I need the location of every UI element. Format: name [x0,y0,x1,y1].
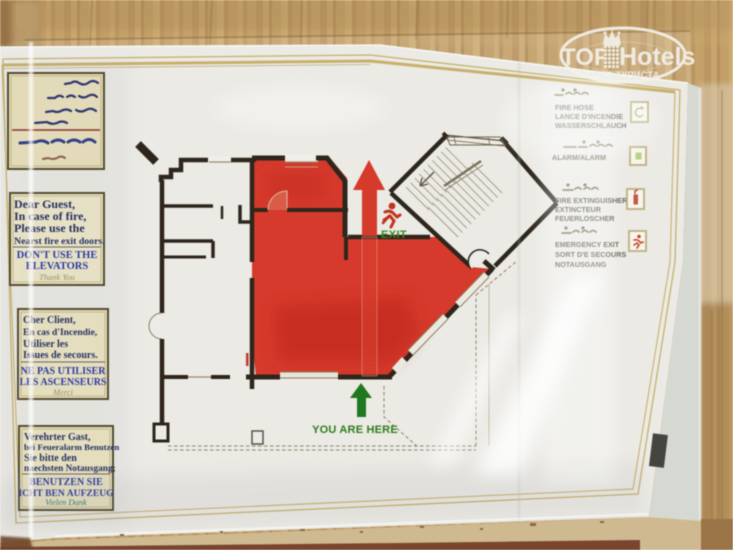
svg-text:TOP: TOP [561,44,610,71]
svg-text:EXIT: EXIT [381,229,407,241]
svg-text:ФОТО ТУРИСТА: ФОТО ТУРИСТА [585,70,660,81]
svg-text:Hotels: Hotels [619,43,695,71]
svg-text:YOU ARE HERE: YOU ARE HERE [312,424,398,436]
